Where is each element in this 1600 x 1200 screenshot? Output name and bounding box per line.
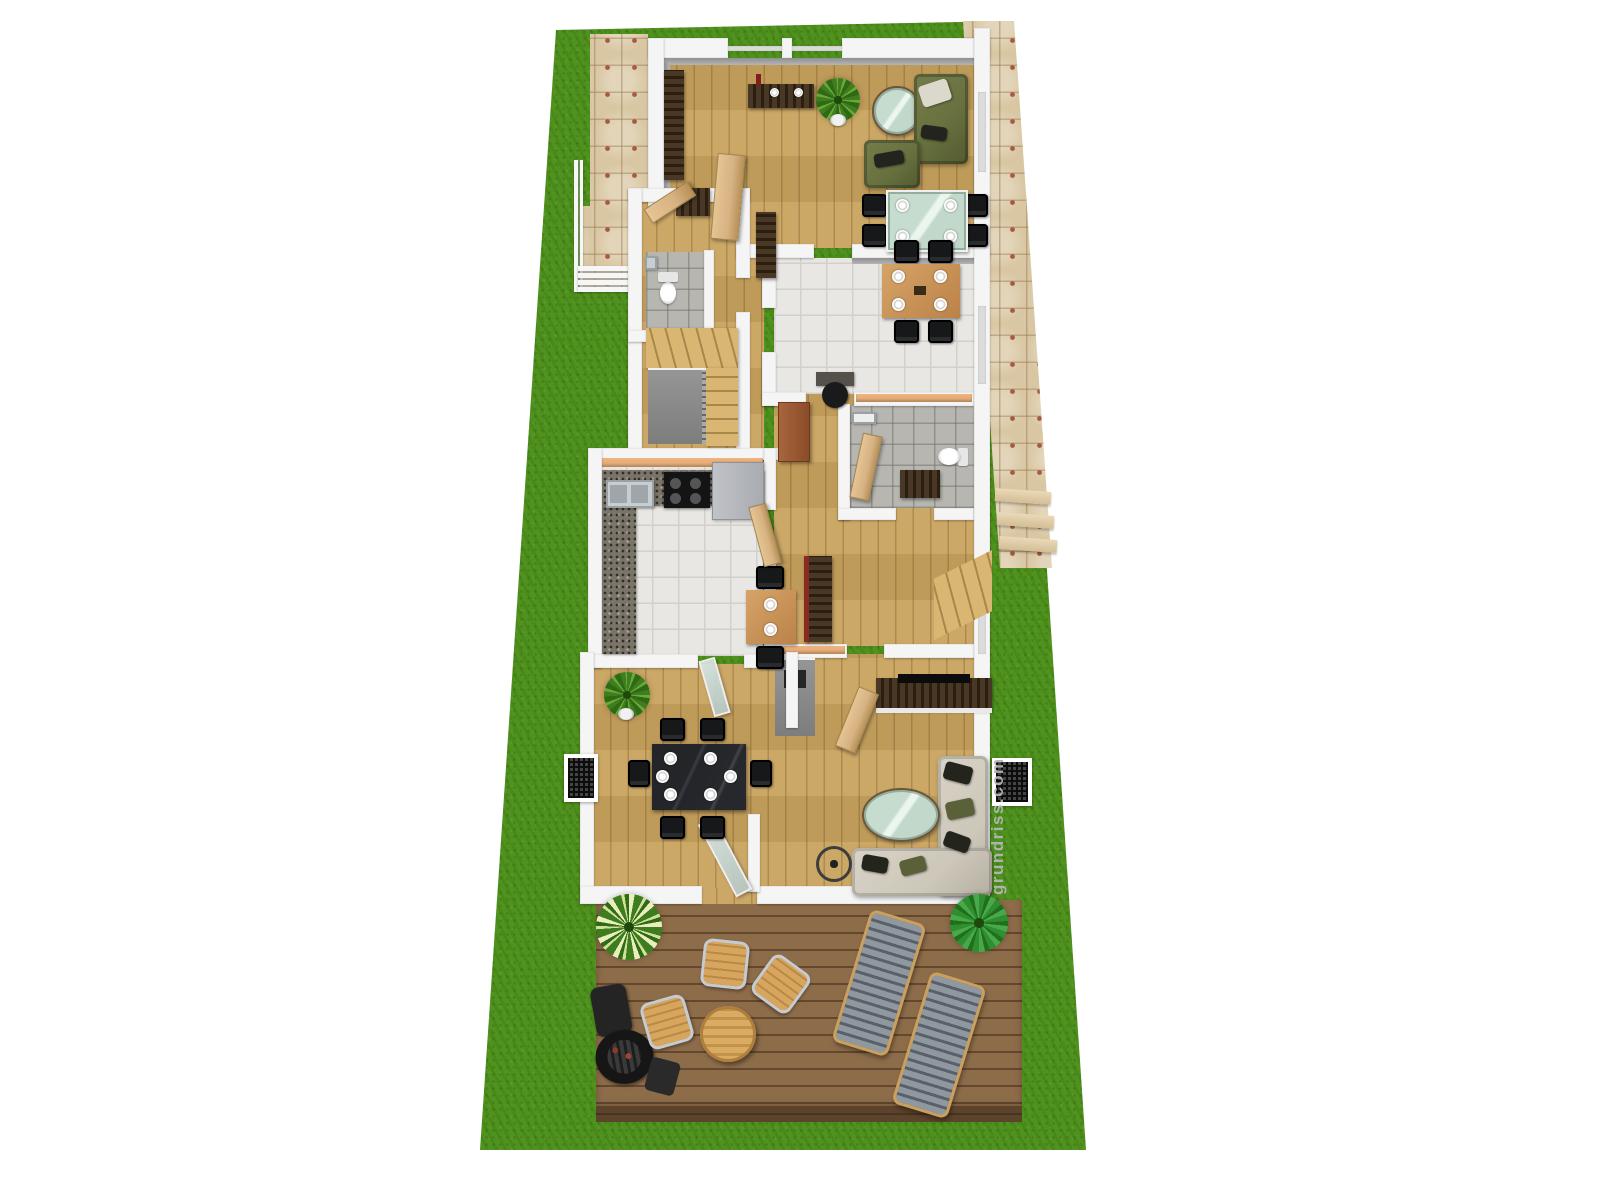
dining-chair [928, 240, 953, 263]
room-divider-wall [786, 652, 798, 728]
wall-shelf [664, 70, 684, 180]
wood-dining-table [882, 264, 960, 318]
room-divider-wall [748, 814, 760, 892]
bathroom-wall [838, 404, 850, 520]
stair-void [648, 368, 706, 444]
deck-chair [700, 938, 751, 991]
dining-chair [700, 816, 725, 839]
dining-chair [750, 760, 772, 787]
stairs-winders [646, 328, 738, 368]
bathroom-wall [838, 508, 896, 520]
interior-wall [884, 644, 988, 658]
dining-chair [660, 718, 685, 741]
lowboard-plinth [876, 708, 992, 713]
floor-lamp [816, 846, 852, 882]
office-chair [822, 382, 848, 408]
deck-plant-right [950, 894, 1008, 952]
exterior-wall-left-upper [648, 38, 664, 206]
window-sill [728, 46, 782, 51]
window-sill [792, 46, 842, 51]
stairs-run [706, 368, 738, 446]
oval-coffee-table [862, 788, 940, 842]
wash-basin [852, 412, 876, 424]
exterior-wall-hall [628, 188, 642, 460]
deck-round-table [700, 1006, 756, 1062]
exterior-wall-top [842, 38, 990, 58]
dining-chair [862, 194, 887, 217]
toilet [938, 448, 960, 465]
wall-cap [856, 394, 972, 402]
interior-wall [736, 312, 750, 460]
dining-chair [628, 760, 650, 787]
decor-plate [794, 88, 803, 97]
bathroom-wall [934, 508, 974, 520]
tv [898, 674, 970, 683]
window-slot [978, 92, 986, 172]
dining-chair [928, 320, 953, 343]
exterior-wall-kitchen [588, 448, 602, 668]
kitchen-table [746, 590, 796, 644]
decor-plate [770, 88, 779, 97]
window-slot [978, 306, 986, 384]
interior-wall [588, 654, 698, 668]
stair-railing [702, 370, 706, 444]
dining-chair [700, 718, 725, 741]
watermark: grundriss.com [988, 740, 1008, 895]
window-pier [782, 38, 792, 58]
toilet-tank [658, 272, 678, 282]
wall-inner-face [662, 58, 974, 65]
plant-pot [618, 708, 634, 720]
kitchen-sink [606, 480, 654, 508]
cooktop-oven [664, 472, 710, 508]
kitchen-chair [756, 566, 784, 589]
wall-vent-left [564, 754, 598, 802]
deck-edge [596, 1106, 1022, 1122]
kitchen-wall-right [764, 448, 776, 510]
cabinet-red-edge [804, 556, 809, 642]
kitchen-chair [756, 646, 784, 669]
plant-pot [830, 114, 846, 126]
floorplan-scene: grundriss.com [0, 0, 1600, 1200]
wall-coat-hooks [900, 470, 940, 498]
toilet [660, 282, 676, 304]
dining-chair [894, 240, 919, 263]
deck-plant-left [596, 894, 662, 960]
decor-bottle [756, 74, 761, 86]
hand-basin [645, 256, 657, 270]
tall-cabinet [756, 212, 776, 278]
dining-chair [862, 224, 887, 247]
dark-wood-door [778, 402, 810, 462]
marble-dining-table [652, 744, 746, 810]
dining-chair [660, 816, 685, 839]
wc-wall [704, 250, 714, 332]
tv-sideboard [748, 84, 814, 108]
dining-chair [894, 320, 919, 343]
